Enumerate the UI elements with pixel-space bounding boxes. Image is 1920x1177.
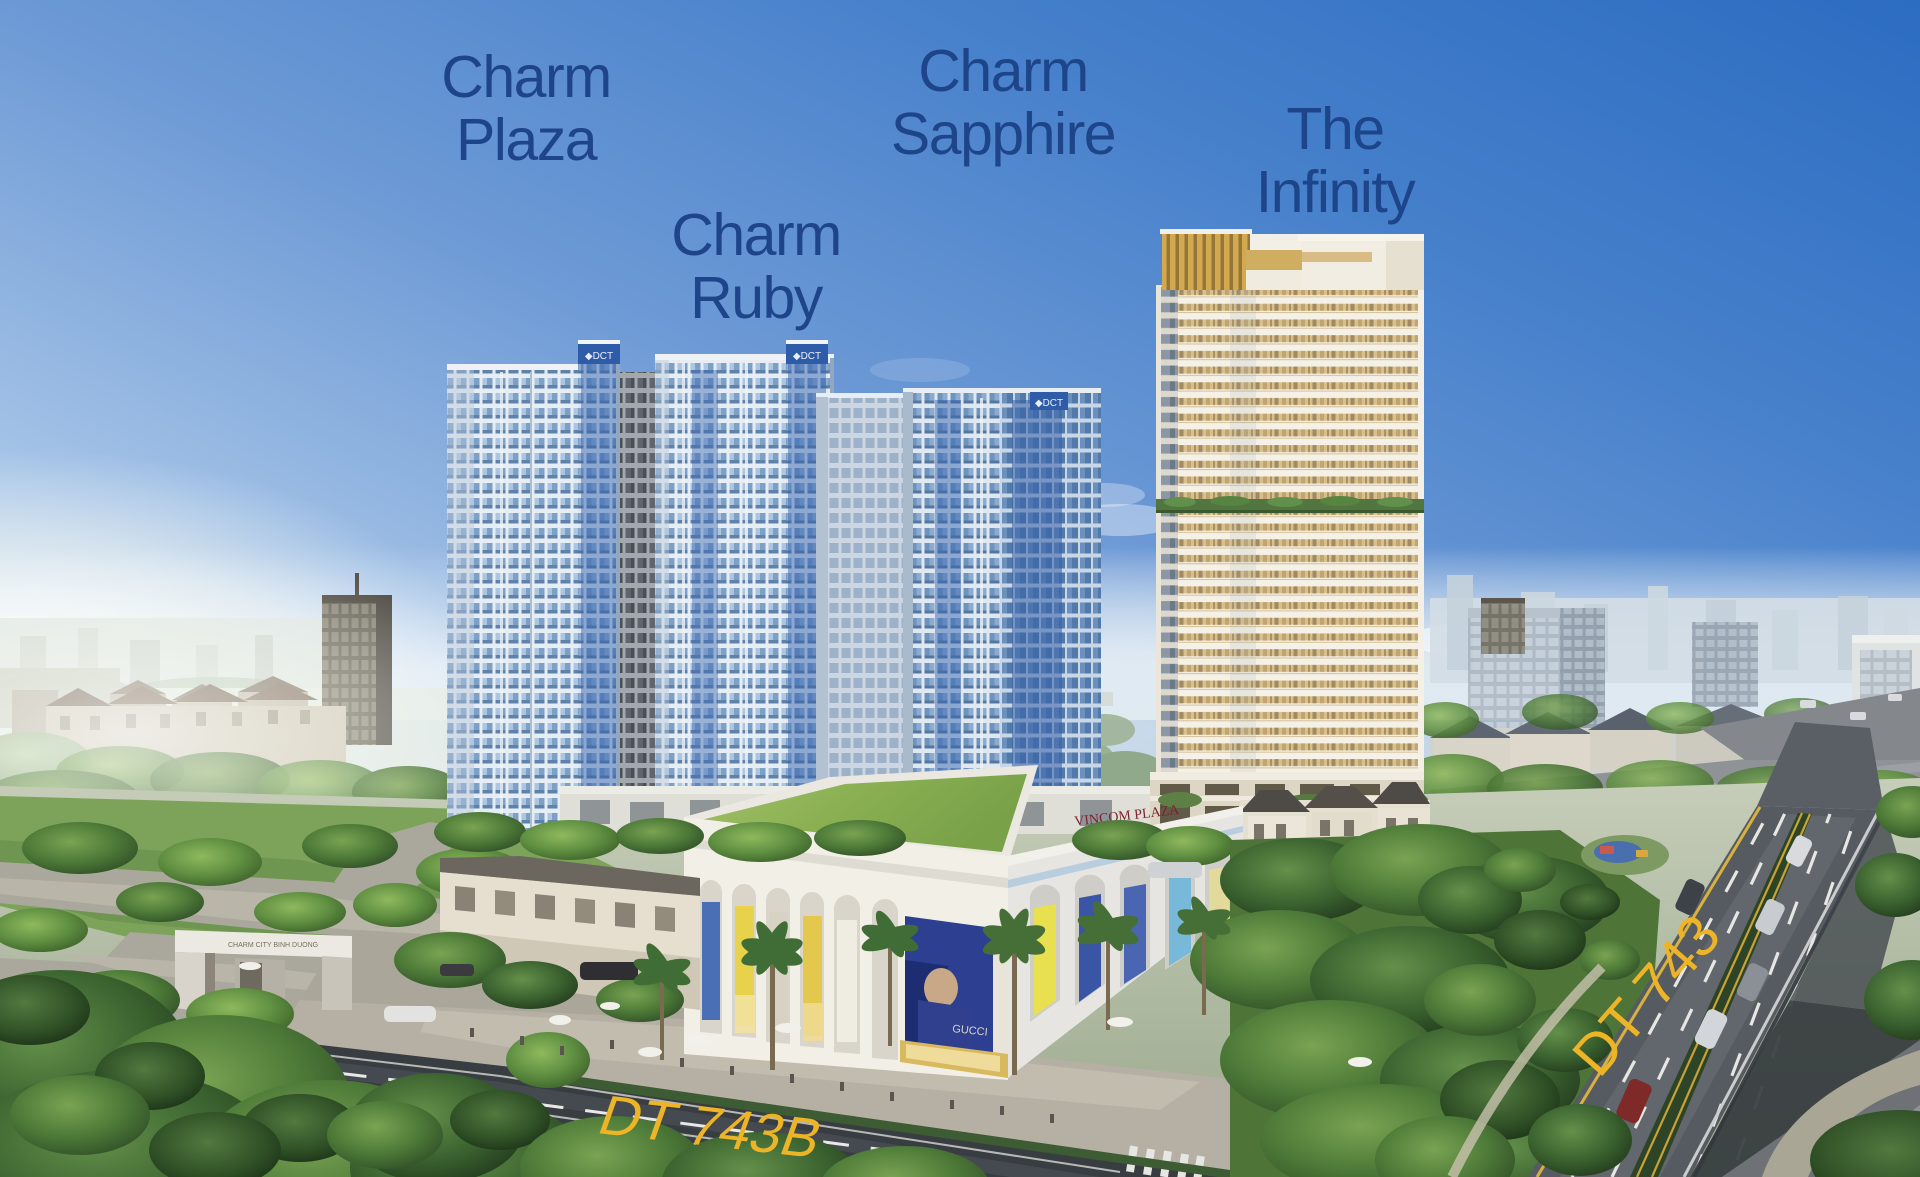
svg-text:◆DCT: ◆DCT — [1035, 398, 1063, 409]
svg-text:CHARM CITY BINH DUONG: CHARM CITY BINH DUONG — [228, 942, 318, 949]
svg-text:◆DCT: ◆DCT — [793, 351, 821, 362]
svg-text:◆DCT: ◆DCT — [585, 351, 613, 362]
